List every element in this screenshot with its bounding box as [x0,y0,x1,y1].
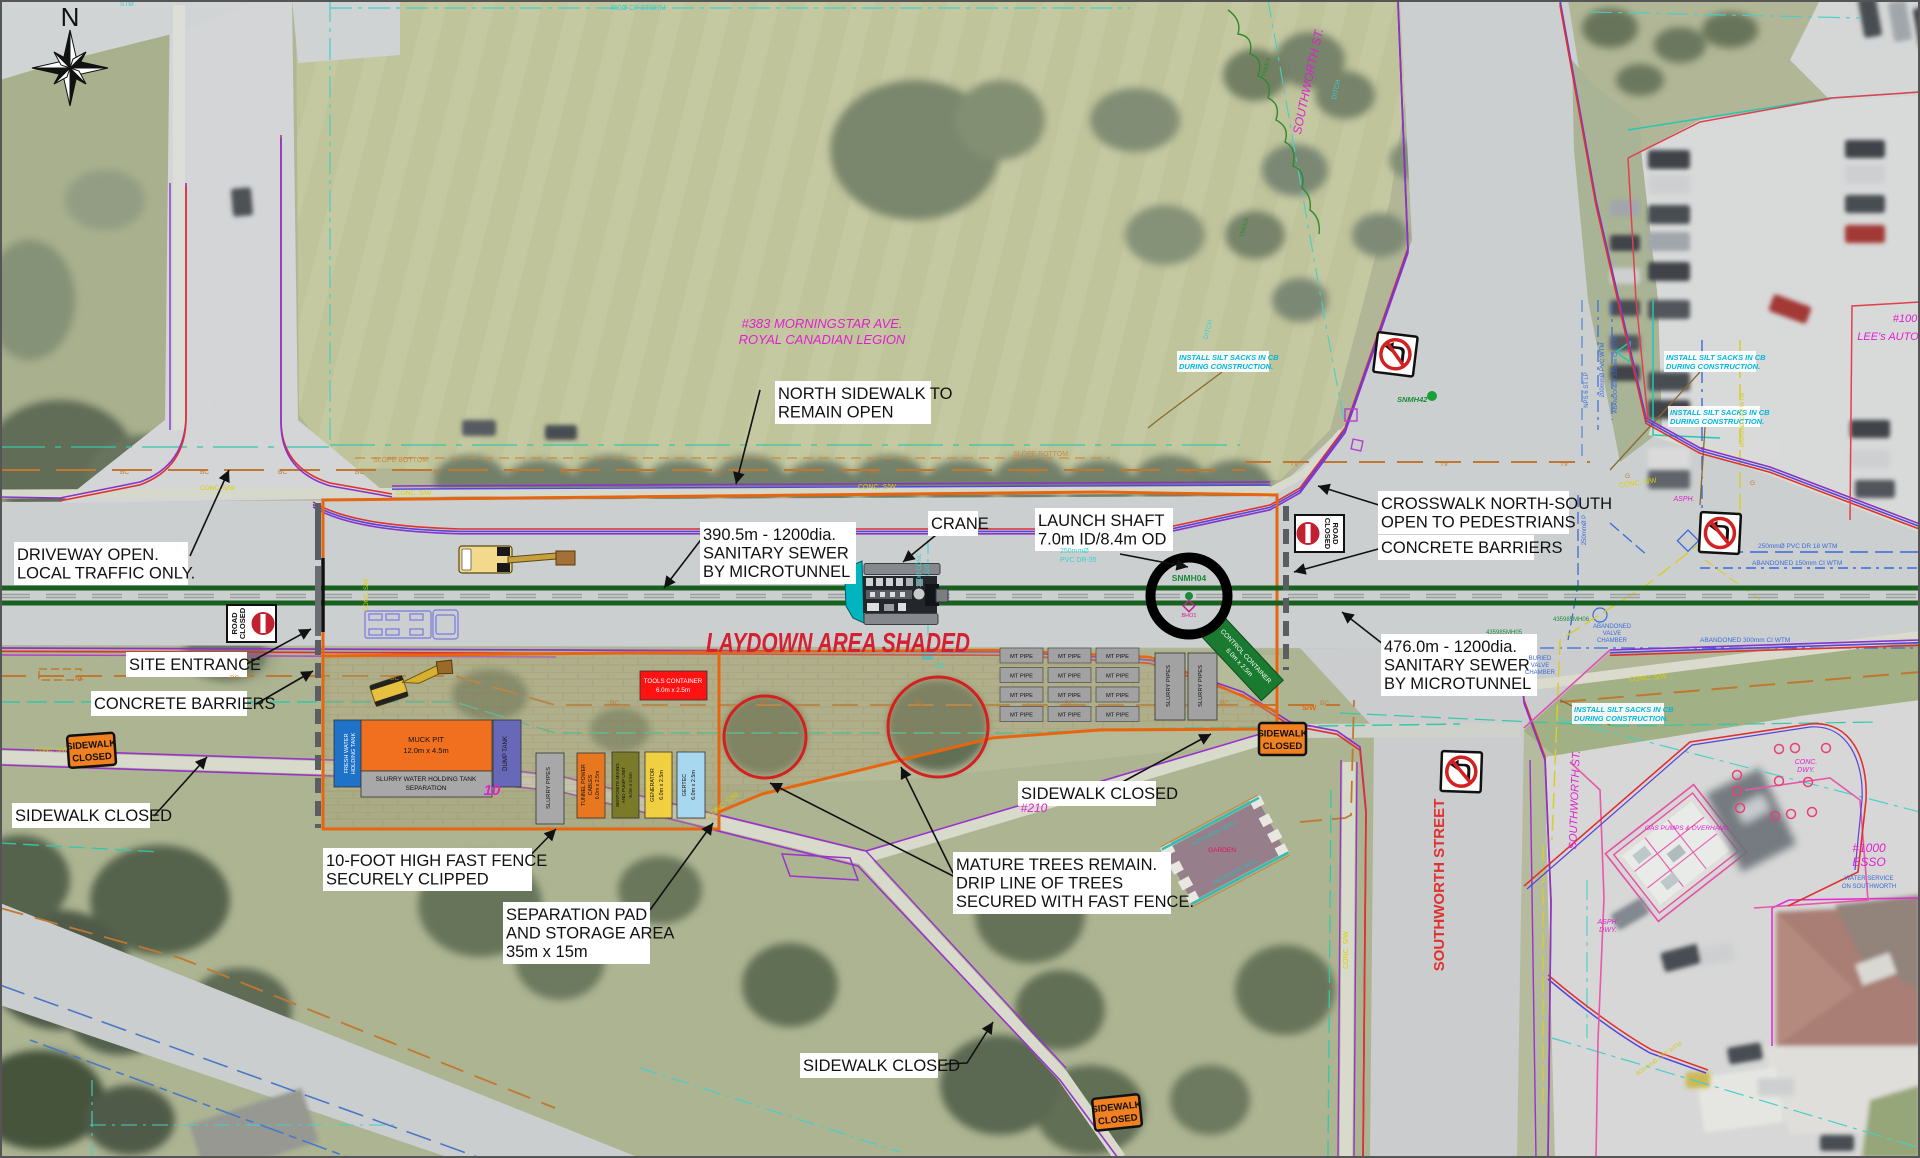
svg-text:SIDEWALK: SIDEWALK [1257,729,1307,740]
svg-text:S/W: S/W [1302,703,1317,712]
svg-text:INSTALL SILT SACKS IN CB: INSTALL SILT SACKS IN CB [1179,353,1279,362]
svg-text:BC: BC [560,469,569,476]
svg-text:BC: BC [278,469,287,476]
svg-text:MT PIPE: MT PIPE [1106,693,1129,699]
svg-text:#210: #210 [1021,801,1048,815]
svg-text:CLOSED: CLOSED [1263,741,1303,752]
svg-text:WATER SERVICE: WATER SERVICE [1845,876,1894,882]
svg-text:BC: BC [200,469,209,476]
svg-text:TUNNEL POWER: TUNNEL POWER [581,764,587,806]
svg-text:MT PIPE: MT PIPE [1058,713,1081,719]
svg-text:BHO1: BHO1 [1182,613,1197,619]
svg-text:LGO: LGO [925,563,931,576]
svg-text:FRESH WATER: FRESH WATER [344,733,350,773]
svg-text:MT PIPE: MT PIPE [1106,713,1129,719]
svg-text:N: N [61,2,80,32]
svg-text:GENERATOR: GENERATOR [650,768,656,802]
svg-text:DRIVEWAY OPEN.: DRIVEWAY OPEN. [17,546,159,564]
svg-text:BENTONITE MIXING: BENTONITE MIXING [615,763,620,807]
svg-text:250mmØ P: 250mmØ P [1582,515,1588,545]
svg-text:CONC. S/W: CONC. S/W [1343,931,1350,969]
svg-text:DWY.: DWY. [1599,927,1617,934]
svg-text:MT PIPE: MT PIPE [1058,654,1081,660]
svg-text:435985MH05: 435985MH05 [1486,630,1523,636]
svg-text:BC: BC [760,700,769,707]
svg-text:BC: BC [120,469,129,476]
svg-text:BC: BC [915,700,924,707]
svg-text:G: G [1625,473,1630,480]
svg-text:6.0m x 2.5m: 6.0m x 2.5m [691,770,697,800]
svg-text:BC: BC [610,700,619,707]
svg-text:OPEN TO PEDESTRIANS: OPEN TO PEDESTRIANS [1381,514,1576,532]
svg-text:MT PIPE: MT PIPE [1010,654,1033,660]
svg-text:CRANE: CRANE [931,515,989,533]
svg-text:MT PIPE: MT PIPE [1058,674,1081,680]
svg-text:BC: BC [1030,469,1039,476]
svg-text:TV: TV [1440,461,1449,468]
svg-text:PVC DR-35: PVC DR-35 [1060,557,1097,564]
svg-text:DURING CONSTRUCTION.: DURING CONSTRUCTION. [1179,362,1273,371]
svg-text:35m x 15m: 35m x 15m [506,943,588,961]
svg-text:CABLES: CABLES [588,774,594,795]
svg-text:SOUTHWORTH STREET: SOUTHWORTH STREET [1431,799,1448,972]
svg-text:MT PIPE: MT PIPE [1106,674,1129,680]
svg-text:INSTALL SILT SACKS IN CB: INSTALL SILT SACKS IN CB [1670,408,1770,417]
svg-text:CONC. S/W: CONC. S/W [858,484,896,491]
svg-text:7.0m ID/8.4m OD: 7.0m ID/8.4m OD [1038,531,1166,549]
svg-text:6.0m x 2.5m: 6.0m x 2.5m [656,687,690,694]
svg-text:DURING CONSTRUCTION.: DURING CONSTRUCTION. [1670,417,1764,426]
svg-text:SECURED WITH FAST FENCE.: SECURED WITH FAST FENCE. [956,893,1194,911]
svg-text:#100: #100 [1893,313,1918,325]
svg-text:390.5m - 1200dia.: 390.5m - 1200dia. [703,526,836,544]
svg-text:BC: BC [1320,700,1329,707]
svg-text:BC: BC [433,469,442,476]
svg-text:10: 10 [484,782,501,799]
svg-text:LOCAL TRAFFIC ONLY.: LOCAL TRAFFIC ONLY. [17,565,195,583]
svg-text:NORTH SIDEWALK TO: NORTH SIDEWALK TO [778,385,953,403]
svg-text:SEPARATION PAD: SEPARATION PAD [506,906,647,924]
svg-text:MT PIPE: MT PIPE [1106,654,1129,660]
svg-text:ABANDONED 200mm CI WTM: ABANDONED 200mm CI WTM [1613,336,1619,413]
svg-text:CONC.: CONC. [1795,759,1818,766]
svg-text:NPS 6 ST LP: NPS 6 ST LP [1584,372,1590,408]
svg-text:TOOLS CONTAINER: TOOLS CONTAINER [644,678,703,685]
svg-text:SITE ENTRANCE: SITE ENTRANCE [129,656,261,674]
svg-text:SIDEWALK CLOSED: SIDEWALK CLOSED [15,807,172,825]
svg-text:SANITARY SEWER: SANITARY SEWER [703,545,849,563]
svg-text:SLURRY PIPES: SLURRY PIPES [1166,665,1172,707]
svg-text:12.0m x 4.5m: 12.0m x 4.5m [403,746,448,755]
svg-text:REMAIN OPEN: REMAIN OPEN [778,404,894,422]
svg-text:LAYDOWN AREA SHADED: LAYDOWN AREA SHADED [706,627,970,658]
svg-text:TV: TV [1560,461,1569,468]
svg-text:BC: BC [1065,700,1074,707]
svg-text:SNMH42: SNMH42 [1397,395,1428,404]
svg-text:CONC. S/W: CONC. S/W [200,485,236,492]
svg-text:SNMH04: SNMH04 [1172,573,1207,583]
svg-text:250mmØ: 250mmØ [1060,548,1089,555]
svg-text:GARDEN: GARDEN [1208,847,1236,854]
svg-text:600mmØ CPP WTM: 600mmØ CPP WTM [1740,393,1746,448]
svg-text:BY MICROTUNNEL: BY MICROTUNNEL [703,563,850,581]
svg-text:CHAMBER: CHAMBER [1525,670,1556,676]
svg-text:ABANDONED 300mm CI WTM: ABANDONED 300mm CI WTM [1700,637,1790,644]
svg-text:SLOPE BOTTOM: SLOPE BOTTOM [373,457,428,464]
svg-text:CROSSWALK NORTH-SOUTH: CROSSWALK NORTH-SOUTH [1381,495,1612,513]
svg-text:VALVE: VALVE [1531,663,1549,669]
svg-text:SIDEWALK CLOSED: SIDEWALK CLOSED [803,1057,960,1075]
svg-text:6.0m x 2.5m: 6.0m x 2.5m [595,771,601,800]
svg-text:DURING CONSTRUCTION.: DURING CONSTRUCTION. [1574,714,1668,723]
svg-text:476.0m - 1200dia.: 476.0m - 1200dia. [1384,638,1517,656]
svg-text:435985MH06: 435985MH06 [1553,617,1590,623]
svg-text:CB: CB [935,663,945,670]
svg-text:ON SOUTHWORTH: ON SOUTHWORTH [1842,884,1896,890]
svg-text:MT PIPE: MT PIPE [1010,713,1033,719]
svg-text:BC: BC [75,675,84,682]
svg-text:DRIP LINE OF TREES: DRIP LINE OF TREES [956,875,1123,893]
svg-text:INSTALL SILT SACKS IN CB: INSTALL SILT SACKS IN CB [1574,705,1674,714]
svg-text:10-FOOT HIGH FAST FENCE: 10-FOOT HIGH FAST FENCE [326,852,547,870]
svg-text:6.0m x 2.5m: 6.0m x 2.5m [628,772,633,797]
svg-text:SLURRY PIPES: SLURRY PIPES [546,767,552,809]
svg-text:LAUNCH SHAFT: LAUNCH SHAFT [1038,512,1165,530]
svg-text:MT PIPE: MT PIPE [1058,693,1081,699]
svg-text:SLURRY WATER HOLDING TANK: SLURRY WATER HOLDING TANK [376,776,477,783]
svg-text:BC: BC [390,675,399,682]
svg-text:250Ø CONC: 250Ø CONC [917,552,923,587]
svg-text:CONC. S/W: CONC. S/W [396,490,432,497]
svg-text:MT PIPE: MT PIPE [1010,674,1033,680]
svg-text:BC: BC [230,675,239,682]
svg-text:MT PIPE: MT PIPE [1010,693,1033,699]
svg-text:ROYAL CANADIAN LEGION: ROYAL CANADIAN LEGION [739,332,906,347]
svg-text:BY MICROTUNNEL: BY MICROTUNNEL [1384,675,1531,693]
svg-text:AND STORAGE AREA: AND STORAGE AREA [506,925,674,943]
svg-text:G: G [1750,480,1755,487]
svg-text:GAS PUMPS & OVERHANG: GAS PUMPS & OVERHANG [1645,825,1729,832]
svg-text:CONCRETE BARRIERS: CONCRETE BARRIERS [1381,539,1563,557]
svg-text:SANITARY SEWER: SANITARY SEWER [1384,657,1530,675]
svg-text:STM: STM [120,1,134,8]
svg-text:ASPH.: ASPH. [1672,496,1694,503]
svg-text:ESSO: ESSO [1852,855,1885,869]
svg-text:200mmØ PVC WTM: 200mmØ PVC WTM [1600,343,1606,398]
svg-text:CONCRETE BARRIERS: CONCRETE BARRIERS [94,695,276,713]
svg-text:BC: BC [1185,469,1194,476]
svg-text:AND PUMP UNIT: AND PUMP UNIT [621,767,626,803]
svg-text:#383 MORNINGSTAR AVE.: #383 MORNINGSTAR AVE. [741,316,902,331]
svg-text:TV: TV [1290,461,1299,468]
svg-text:DWY.: DWY. [1797,767,1815,774]
svg-text:450Ø CP STORM: 450Ø CP STORM [610,5,666,12]
svg-text:GERTEC: GERTEC [682,774,688,796]
svg-text:6.0m x 2.5m: 6.0m x 2.5m [659,770,665,800]
svg-text:CHAMBER: CHAMBER [1597,638,1628,644]
svg-text:250mmØ PVC DR 18 WTM: 250mmØ PVC DR 18 WTM [1758,543,1837,550]
svg-text:DUMP TANK: DUMP TANK [503,736,509,771]
svg-text:CONC. S/W: CONC. S/W [35,748,68,754]
svg-text:ABANDONED 150mm CI WTM: ABANDONED 150mm CI WTM [1752,560,1842,567]
svg-text:ASPH.: ASPH. [1596,919,1618,926]
svg-text:#1000: #1000 [1852,841,1886,855]
svg-text:BC: BC [1220,700,1229,707]
svg-text:BC: BC [870,469,879,476]
svg-text:DURING CONSTRUCTION.: DURING CONSTRUCTION. [1666,362,1760,371]
svg-text:ABANDONED: ABANDONED [1593,624,1632,630]
svg-text:LEE's AUTO: LEE's AUTO [1857,331,1919,343]
svg-text:VALVE: VALVE [1603,631,1621,637]
svg-text:SEPARATION: SEPARATION [406,785,447,792]
svg-text:BC: BC [715,469,724,476]
svg-text:BURIED: BURIED [1529,656,1552,662]
svg-text:HOLDING TANK: HOLDING TANK [351,733,357,775]
svg-text:SECURELY CLIPPED: SECURELY CLIPPED [326,871,489,889]
svg-text:SLOPE BOTTOM: SLOPE BOTTOM [1013,451,1068,458]
svg-text:SLURRY PIPES: SLURRY PIPES [1198,665,1204,707]
svg-text:INSTALL SILT SACKS IN CB: INSTALL SILT SACKS IN CB [1666,353,1766,362]
svg-text:MATURE TREES REMAIN.: MATURE TREES REMAIN. [956,856,1157,874]
svg-text:CONC. S/W: CONC. S/W [364,579,370,612]
svg-text:MUCK PIT: MUCK PIT [408,735,444,744]
svg-text:BC: BC [355,469,364,476]
